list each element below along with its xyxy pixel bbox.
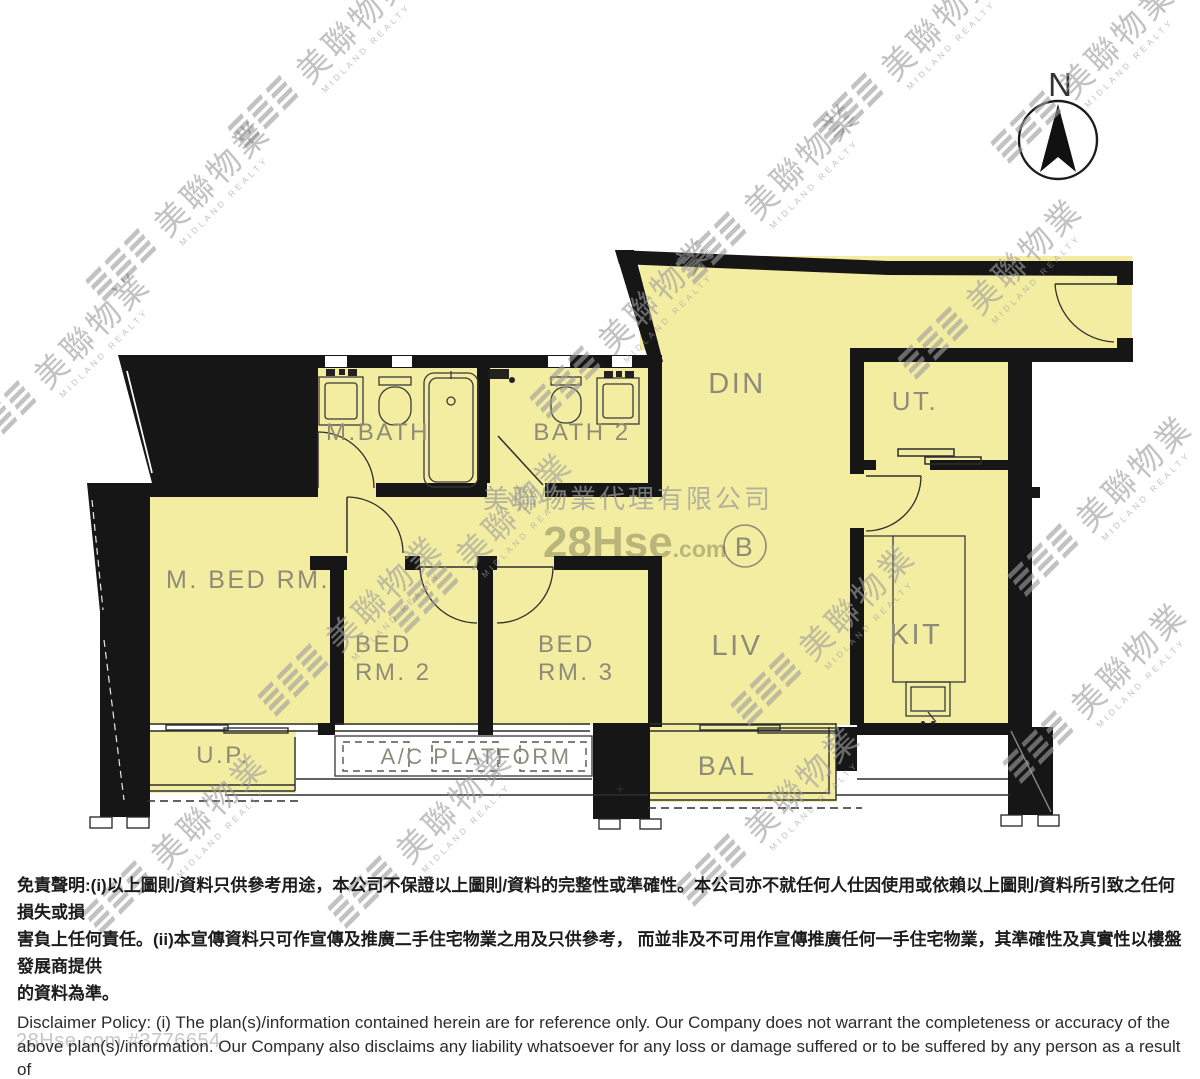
label-liv: LIV <box>711 630 762 662</box>
label-bed2-line2: RM. 2 <box>355 659 432 686</box>
site-watermark-tld: .com <box>673 536 727 562</box>
label-mbath: M.BATH <box>326 419 430 446</box>
site-watermark-name: 28Hse <box>543 518 673 567</box>
label-bal: BAL <box>698 751 757 781</box>
disclaimer-english: Disclaimer Policy: (i) The plan(s)/infor… <box>17 1011 1187 1079</box>
label-kit: KIT <box>890 619 943 651</box>
label-bed3-line1: BED <box>538 631 595 658</box>
label-mbed: M. BED RM. <box>166 566 330 594</box>
disclaimer-chinese: 免責聲明:(i)以上圖則/資料只供參考用途，本公司不保證以上圖則/資料的完整性或… <box>17 872 1187 1007</box>
unit-letter: B <box>735 532 756 562</box>
label-bed3-line2: RM. 3 <box>538 659 615 686</box>
label-ut: UT. <box>892 386 939 416</box>
label-bath2: BATH 2 <box>533 419 630 446</box>
disclaimer-block: 免責聲明:(i)以上圖則/資料只供參考用途，本公司不保證以上圖則/資料的完整性或… <box>17 872 1187 1079</box>
floor-plan-page: 美聯物業 MIDLAND REALTY <box>0 0 1200 1079</box>
label-din: DIN <box>708 368 765 400</box>
agency-watermark: 美聯物業代理有限公司 <box>483 484 773 514</box>
